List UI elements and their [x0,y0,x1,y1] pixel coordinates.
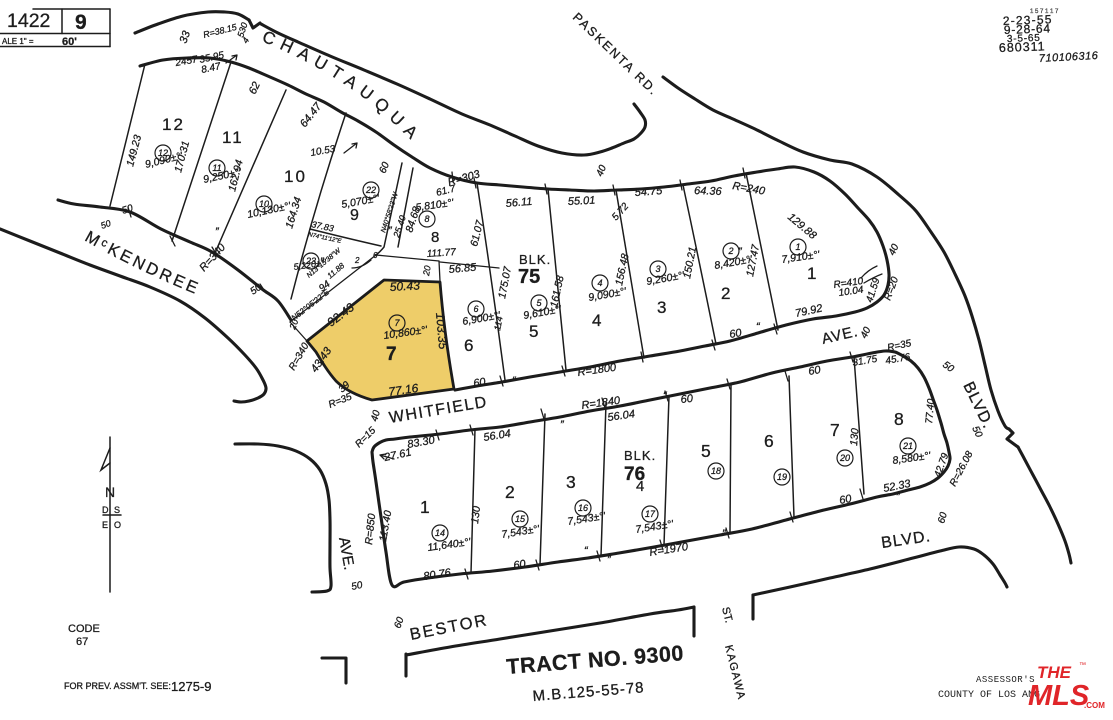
svg-text:15: 15 [515,514,526,524]
svg-text:60: 60 [680,393,694,406]
svg-text:9: 9 [350,207,359,224]
svg-text:64.36: 64.36 [694,185,723,198]
svg-text:MLS: MLS [1028,680,1090,712]
svg-text:N: N [105,484,115,500]
svg-text:8: 8 [894,409,904,429]
svg-text:14: 14 [435,528,445,538]
svg-text:12: 12 [162,115,185,134]
svg-text:3: 3 [566,472,576,492]
svg-text:.COM: .COM [1084,701,1105,710]
svg-text:5: 5 [529,322,538,341]
svg-text:11: 11 [222,128,244,147]
svg-text:6: 6 [464,336,473,355]
svg-text:20: 20 [839,453,850,463]
svg-text:D: D [102,505,109,515]
svg-text:54.75: 54.75 [634,185,663,199]
svg-text:8: 8 [431,229,439,246]
svg-text:6: 6 [373,251,378,260]
svg-text:1: 1 [807,264,816,283]
svg-text:1275-9: 1275-9 [171,679,211,694]
svg-text:75: 75 [518,266,540,288]
svg-text:7: 7 [830,420,840,440]
svg-text:ASSESSOR'S: ASSESSOR'S [976,675,1035,685]
svg-text:130: 130 [848,428,861,447]
svg-text:1 5 7 1 1 7: 1 5 7 1 1 7 [1030,9,1059,15]
svg-text:2: 2 [505,482,515,502]
svg-text:4: 4 [636,478,644,495]
svg-text:111.77: 111.77 [426,247,456,260]
svg-text:56.85: 56.85 [448,262,477,276]
svg-text:E: E [102,520,108,530]
svg-text:4: 4 [597,278,602,288]
svg-text:O: O [114,520,121,530]
svg-text:19: 19 [777,472,787,482]
svg-text:2: 2 [727,246,733,256]
svg-text:3: 3 [657,298,666,317]
svg-text:1: 1 [420,497,430,517]
svg-text:4: 4 [592,311,601,330]
svg-text:7: 7 [386,344,397,365]
svg-text:20: 20 [421,265,433,278]
svg-text:10: 10 [284,167,307,186]
svg-text:130: 130 [469,505,483,524]
svg-text:3: 3 [655,264,660,274]
svg-text:2: 2 [354,256,360,265]
svg-text:BLK.: BLK. [624,448,656,463]
svg-text:50.43: 50.43 [389,278,420,294]
svg-text:17: 17 [645,509,656,519]
svg-text:56.11: 56.11 [505,196,533,210]
svg-text:5: 5 [701,441,711,461]
svg-text:CODE: CODE [68,623,100,635]
svg-text:ALE 1" =: ALE 1" = [2,37,34,46]
svg-text:FOR PREV. ASSM'T. SEE:: FOR PREV. ASSM'T. SEE: [64,681,171,691]
svg-text:S: S [114,505,120,515]
svg-text:21: 21 [902,441,913,451]
svg-text:COUNTY OF LOS ANG: COUNTY OF LOS ANG [938,690,1040,701]
svg-text:60': 60' [62,36,77,48]
svg-text:8: 8 [424,214,429,224]
svg-text:™: ™ [1079,662,1086,669]
svg-text:67: 67 [76,636,88,648]
svg-text:16: 16 [578,503,588,513]
svg-text:1422: 1422 [7,10,50,32]
svg-text:77.40: 77.40 [924,398,937,424]
svg-text:2: 2 [721,284,730,303]
svg-text:BLK.: BLK. [519,252,551,267]
svg-text:9: 9 [75,11,87,34]
svg-text:6: 6 [764,431,774,451]
svg-text:18: 18 [711,466,721,476]
svg-text:55.01: 55.01 [568,195,596,208]
